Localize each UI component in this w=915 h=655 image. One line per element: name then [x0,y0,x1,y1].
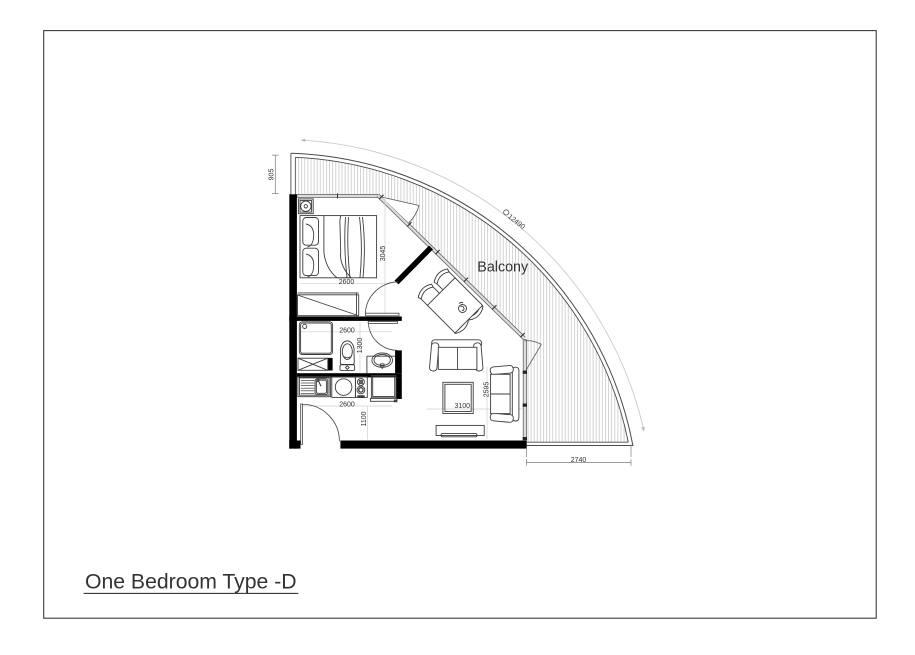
svg-text:2600: 2600 [339,402,355,409]
svg-text:12490: 12490 [506,213,526,231]
svg-text:1300: 1300 [357,338,364,354]
svg-text:2595: 2595 [484,382,491,398]
svg-text:3045: 3045 [380,246,387,262]
svg-text:Balcony: Balcony [477,260,529,276]
svg-text:1100: 1100 [361,411,368,426]
svg-text:3100: 3100 [455,403,471,410]
svg-text:2740: 2740 [571,457,587,464]
svg-text:One Bedroom Type -D: One Bedroom Type -D [85,571,297,594]
svg-text:2600: 2600 [339,327,355,334]
svg-text:905: 905 [269,169,276,181]
svg-text:2600: 2600 [339,279,355,286]
